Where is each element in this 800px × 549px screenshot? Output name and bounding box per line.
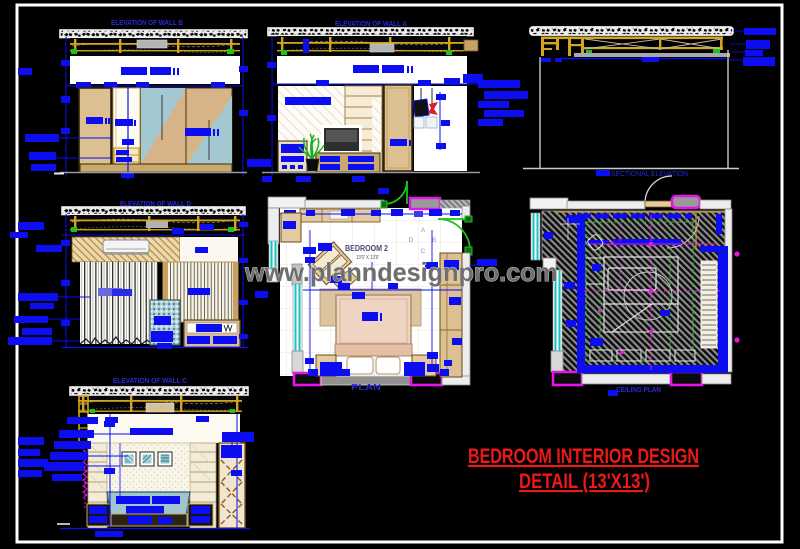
svg-text:A: A (421, 227, 426, 234)
svg-text:B: B (432, 237, 436, 244)
svg-text:ELEVATION OF WALL B: ELEVATION OF WALL B (111, 18, 183, 27)
svg-text:ELEVATION OF WALL A: ELEVATION OF WALL A (335, 19, 407, 28)
svg-text:ELEVATION OF WALL C: ELEVATION OF WALL C (113, 376, 188, 385)
svg-text:D: D (409, 237, 414, 244)
svg-text:SECTIONAL ELEVATION: SECTIONAL ELEVATION (611, 171, 688, 178)
svg-text:BEDROOM 2: BEDROOM 2 (345, 244, 388, 253)
svg-text:www.planndesignpro.com: www.planndesignpro.com (244, 257, 558, 287)
svg-text:BEDROOM INTERIOR DESIGN: BEDROOM INTERIOR DESIGN (468, 445, 699, 468)
svg-text:PLAN: PLAN (351, 383, 381, 392)
svg-text:DETAIL (13'X13'): DETAIL (13'X13') (519, 470, 650, 493)
svg-text:C: C (421, 248, 426, 255)
svg-text:CEILING PLAN: CEILING PLAN (616, 385, 661, 394)
